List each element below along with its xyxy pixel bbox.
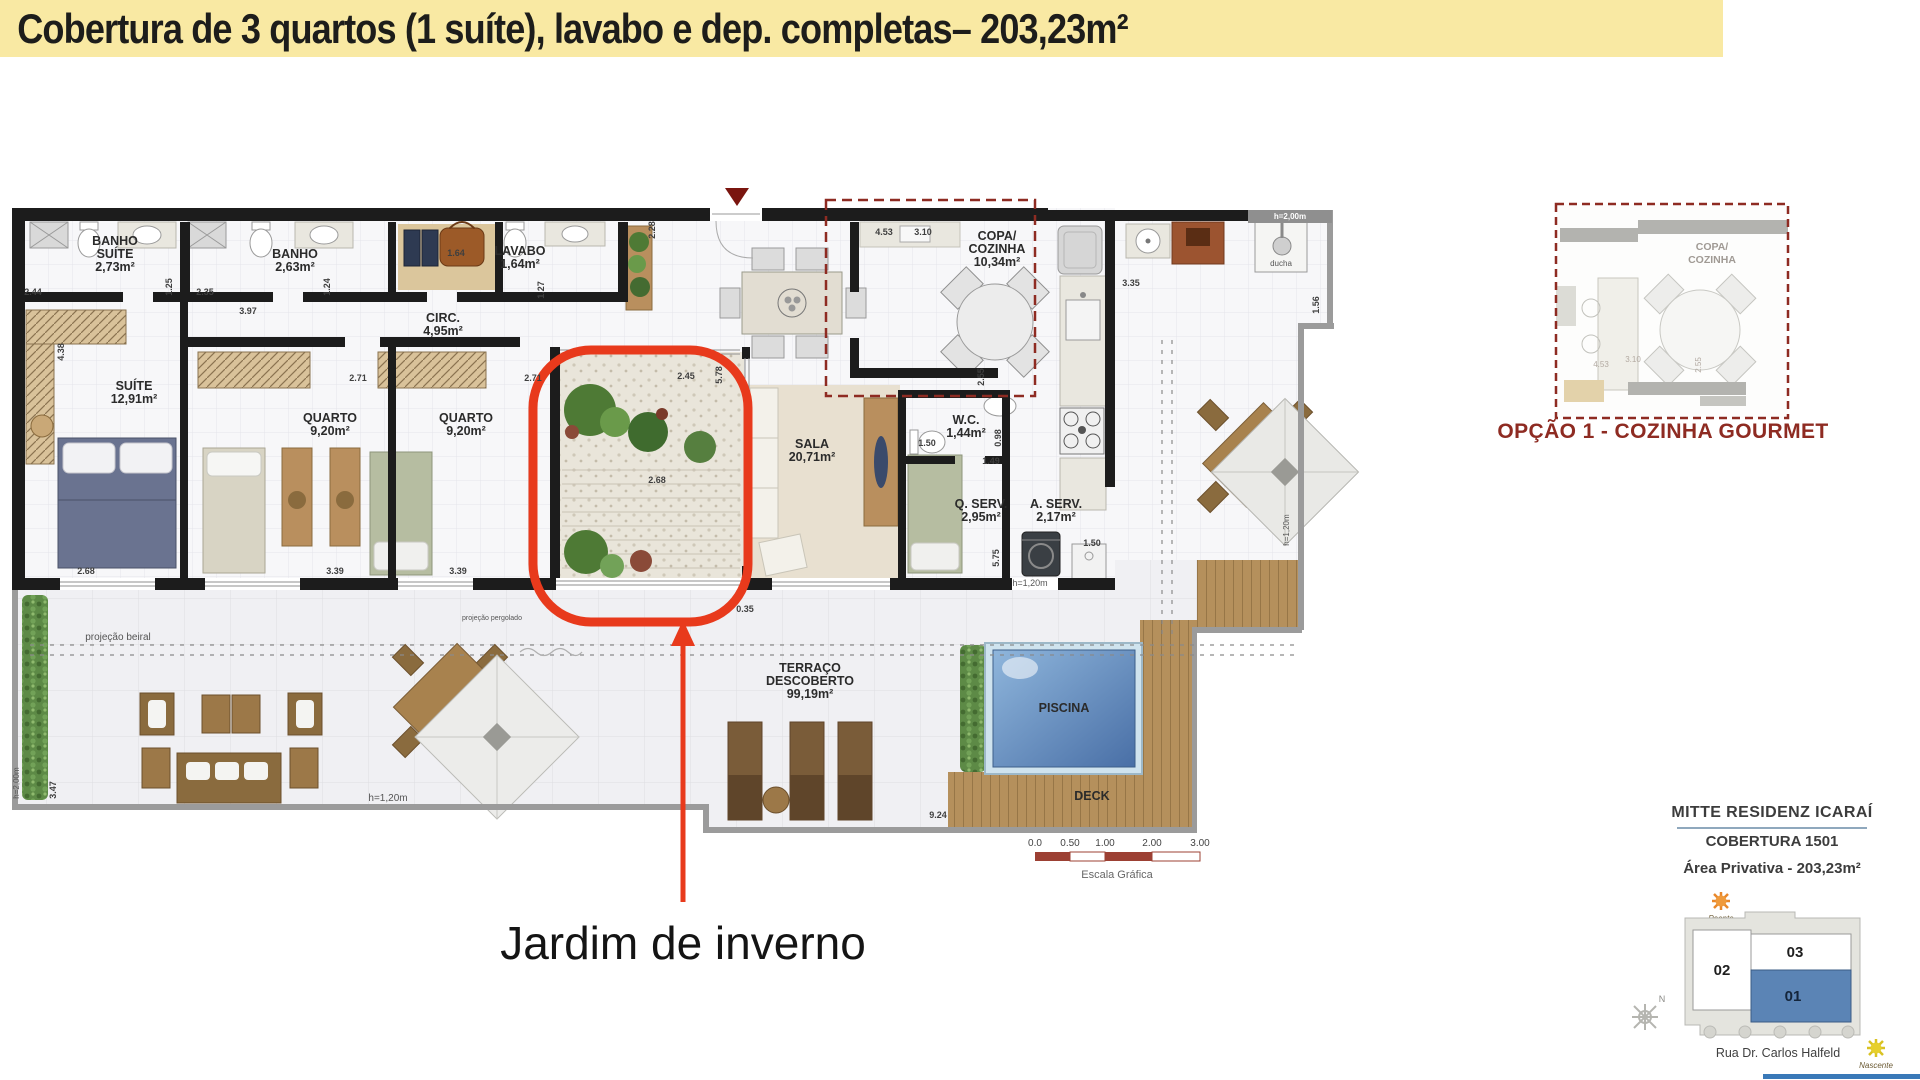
dimension-label: 5.78 (714, 366, 724, 384)
dimension-label: 3.10 (914, 227, 932, 237)
inset-dimension-label: 2.55 (1694, 357, 1703, 373)
room-label: SUÍTE12,91m² (111, 378, 158, 406)
room-label: QUARTO9,20m² (439, 411, 493, 438)
private-area: Área Privativa - 203,23m² (1647, 860, 1897, 877)
room-label: A. SERV.2,17m² (1030, 497, 1082, 524)
unit-name: COBERTURA 1501 (1647, 833, 1897, 850)
dimension-label: 2.68 (648, 475, 666, 485)
street-label: Rua Dr. Carlos Halfeld (1716, 1046, 1840, 1060)
nascente-label: Nascente (1859, 1061, 1893, 1070)
unit-03-label: 03 (1787, 944, 1804, 961)
gourmet-inset: OPÇÃO 1 - COZINHA GOURMET (1497, 204, 1828, 443)
bottom-accent-bar (1763, 1074, 1920, 1079)
inset-dimension-label: 3.10 (1625, 355, 1641, 364)
dimension-label: 1.49 (982, 456, 1000, 466)
annotation-label: projeção pergolado (462, 615, 522, 622)
annotation-label: h=2,00m (1274, 212, 1306, 221)
nascente-sun-icon (1867, 1039, 1885, 1057)
dimension-label: 3.39 (449, 566, 467, 576)
poente-sun-icon (1712, 892, 1730, 910)
dimension-label: 2.45 (677, 371, 695, 381)
annotation-label: h=1,20m (1282, 514, 1291, 546)
dimension-label: 1.56 (1311, 296, 1321, 314)
dimension-label: 0.98 (993, 429, 1003, 447)
annotation-label: ducha (1270, 259, 1292, 268)
dimension-label: 2.71 (524, 373, 542, 383)
compass-icon (1632, 1004, 1658, 1030)
scale-tick: 3.00 (1190, 838, 1210, 849)
entry-arrow-icon (725, 188, 749, 206)
room-label: SALA20,71m² (789, 437, 836, 464)
scale-tick: 2.00 (1142, 838, 1162, 849)
north-label: N (1659, 994, 1666, 1004)
dimension-label: 3.47 (48, 781, 58, 799)
dimension-label: 4.38 (56, 343, 66, 361)
inset-dimension-label: 4.53 (1593, 360, 1609, 369)
unit-02-label: 02 (1714, 962, 1731, 979)
room-label: QUARTO9,20m² (303, 411, 357, 438)
dimension-label: 2.71 (349, 373, 367, 383)
dimension-label: 1.24 (322, 278, 332, 296)
room-label: Q. SERV.2,95m² (955, 497, 1008, 524)
dimension-label: 9.24 (929, 810, 947, 820)
dimension-label: 3.35 (1122, 278, 1140, 288)
dimension-label: 1.27 (536, 281, 546, 299)
dimension-label: 2.35 (196, 287, 214, 297)
title-banner: Cobertura de 3 quartos (1 suíte), lavabo… (0, 0, 1723, 57)
room-label: BANHOSUÍTE2,73m² (92, 234, 138, 274)
dimension-label: 0.35 (736, 604, 754, 614)
room-label: LAVABO1,64m² (495, 244, 546, 271)
dimension-label: 1.50 (918, 438, 936, 448)
dimension-label: 1.25 (164, 278, 174, 296)
page-title: Cobertura de 3 quartos (1 suíte), lavabo… (0, 5, 1128, 53)
dimension-label: 2.28 (647, 221, 657, 239)
annotation-label: projeção beiral (85, 632, 151, 643)
page: Escala Gráfica OPÇÃO 1 - COZINHA GOURMET (0, 0, 1920, 1080)
divider (1677, 827, 1867, 829)
annotation-label: h=1,20m (1012, 578, 1047, 588)
scale-tick: 1.00 (1095, 838, 1115, 849)
scale-caption: Escala Gráfica (1081, 869, 1153, 881)
dimension-label: 1.50 (1083, 538, 1101, 548)
dimension-label: 2.68 (77, 566, 95, 576)
project-name: MITTE RESIDENZ ICARAÍ (1647, 804, 1897, 822)
annotation-label: h=1,20m (368, 793, 407, 804)
winter-garden-callout-label: Jardim de inverno (500, 916, 866, 970)
key-plan: Poente 02 03 01 N Rua Dr. Carlos Halfeld (1615, 885, 1920, 1080)
dimension-label: 2.44 (24, 287, 42, 297)
inset-caption: OPÇÃO 1 - COZINHA GOURMET (1497, 420, 1828, 443)
room-label: DECK (1074, 789, 1109, 803)
scale-tick: 0.0 (1028, 838, 1042, 849)
scale-tick: 0.50 (1060, 838, 1080, 849)
dimension-label: 1.64 (447, 248, 465, 258)
dimension-label: 2.55 (976, 368, 986, 386)
room-label: PISCINA (1039, 701, 1090, 715)
building-footprint: 02 03 01 (1685, 912, 1860, 1038)
dimension-label: 5.75 (991, 549, 1001, 567)
unit-01-label: 01 (1785, 988, 1802, 1005)
scale-bar: Escala Gráfica (1035, 852, 1200, 881)
room-label: BANHO2,63m² (272, 247, 318, 274)
annotation-label: h=2,00m (12, 767, 21, 799)
dimension-label: 4.53 (875, 227, 893, 237)
dimension-label: 3.97 (239, 306, 257, 316)
room-label: CIRC.4,95m² (423, 311, 463, 338)
dimension-label: 3.39 (326, 566, 344, 576)
